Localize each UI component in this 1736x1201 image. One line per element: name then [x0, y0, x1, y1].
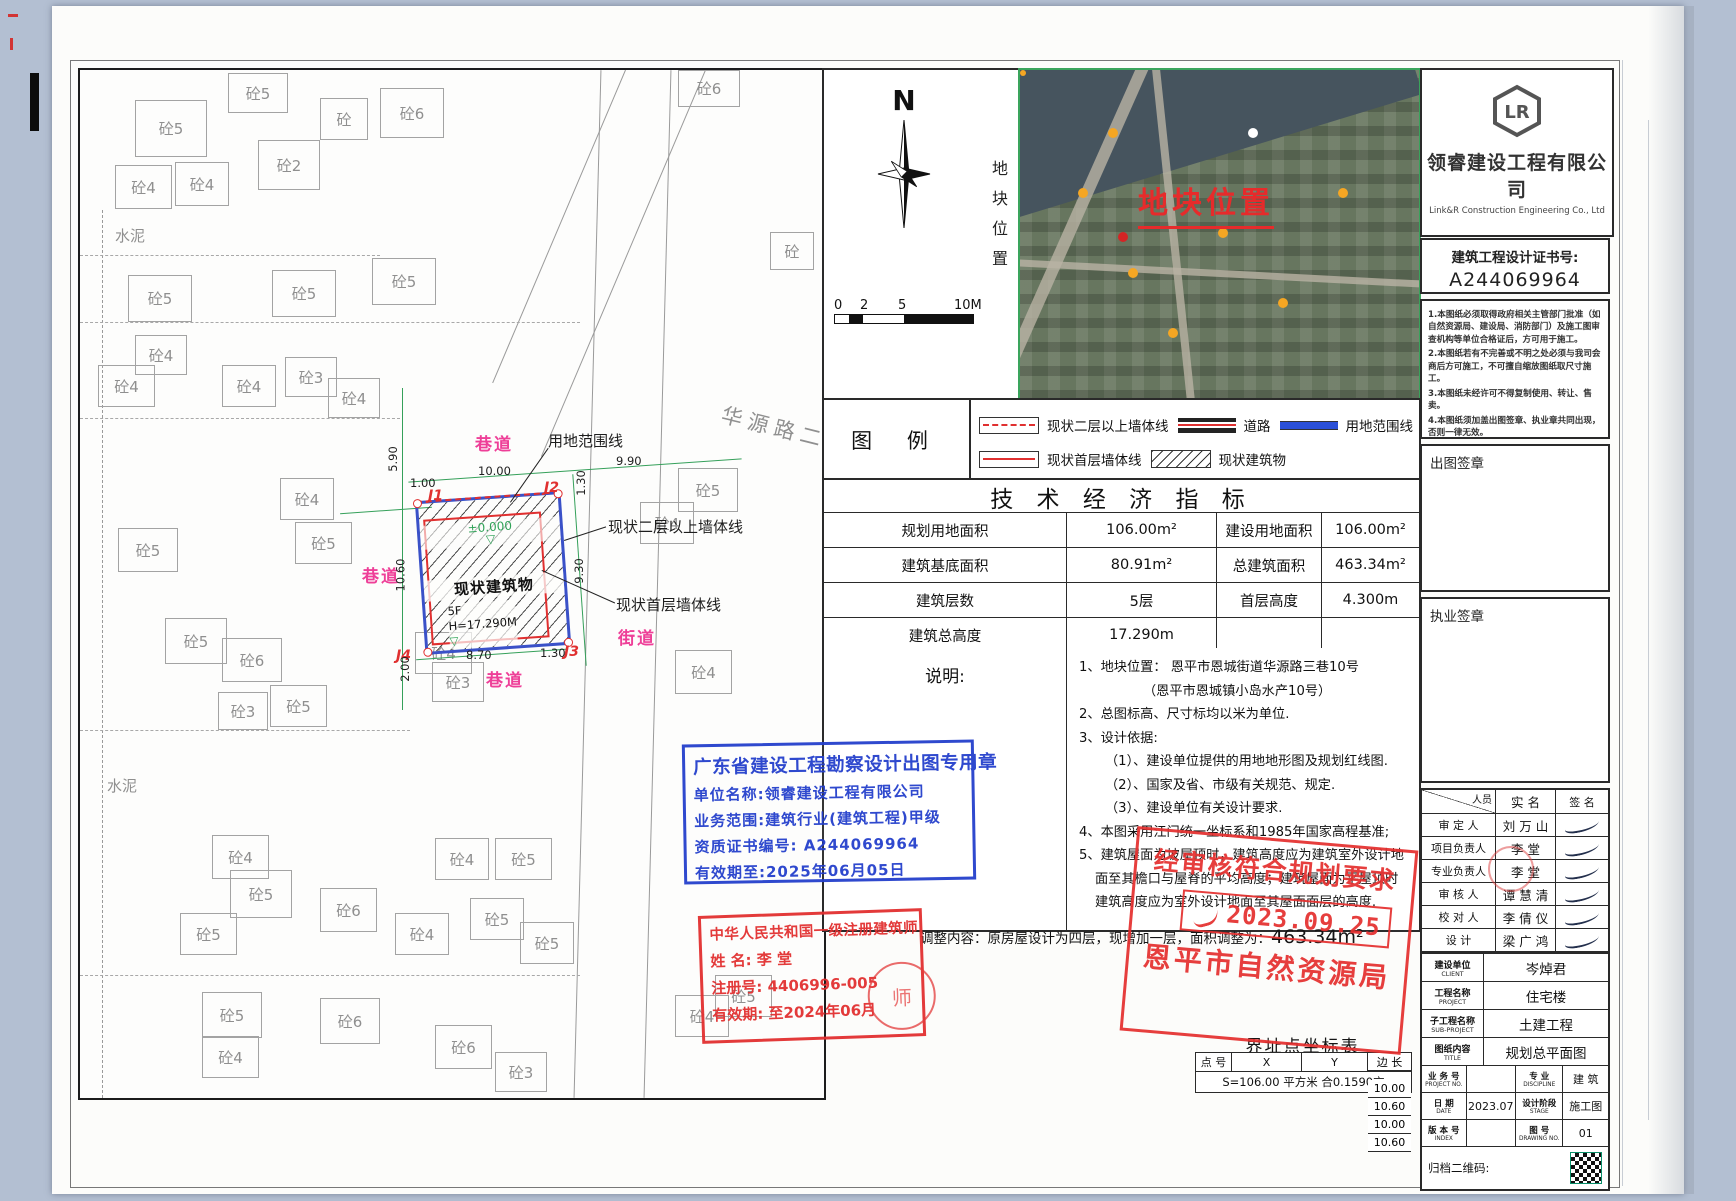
parcel-label: 砼 [336, 109, 351, 130]
company-block: LR 领睿建设工程有限公司 Link&R Construction Engine… [1420, 68, 1614, 237]
parcel: 砼3 [218, 692, 268, 730]
parcel: 砼5 [118, 528, 178, 572]
parcel: 砼5 [230, 870, 292, 918]
annotation-label: 现状二层以上墙体线 [608, 516, 743, 537]
legend-label: 现状二层以上墙体线 [1047, 415, 1169, 435]
company-note: 2.本图纸若有不完善或不明之处必须与我司会商后方可施工，不可擅自缩放图纸取尺寸施… [1428, 348, 1602, 385]
legend-label: 道路 [1244, 415, 1271, 435]
parcel-label: 砼3 [231, 701, 256, 722]
parcel: 砼2 [258, 140, 320, 190]
note-line: （1）、建设单位提供的用地地形图及规划红线图. [1079, 750, 1413, 769]
parcel: 砼5 [272, 270, 336, 317]
project-info-value: 住宅楼 [1484, 982, 1608, 1009]
tech-value: 4.300m [1322, 583, 1419, 617]
project-info-value: 土建工程 [1484, 1010, 1608, 1037]
tech-label: 建设用地面积 [1217, 513, 1322, 547]
parcel-label: 砼5 [485, 909, 510, 930]
parcel-label: 砼2 [277, 155, 302, 176]
qr-label: 归档二维码: [1428, 1160, 1489, 1176]
scale-bar: 0 2 5 10M [834, 298, 974, 324]
parcel-label: 砼5 [511, 849, 536, 870]
boundary-point-label: J3 [564, 644, 579, 660]
approval-date: 2023.09.25 [1225, 900, 1381, 941]
personnel-role: 校 对 人 [1422, 906, 1496, 928]
personnel-role: 审 定 人 [1422, 814, 1496, 836]
personnel-role: 项目负责人 [1422, 837, 1496, 859]
tech-value: 5层 [1067, 583, 1217, 617]
project-info-value: 岑焯君 [1484, 954, 1608, 981]
project-meta-row: 业 务 号PROJECT NO. 专 业DISCIPLINE 建 筑 [1422, 1065, 1608, 1092]
personal-seal [1488, 846, 1534, 892]
building-floors: 5FH=17.290M▽ [447, 600, 518, 649]
parcel: 砼6 [320, 888, 377, 932]
parcel: 砼4 [202, 1036, 259, 1078]
project-meta-value: 建 筑 [1563, 1066, 1608, 1092]
parcel-label: 砼6 [338, 1011, 363, 1032]
parcel-label: 砼4 [237, 376, 262, 397]
parcel-label: 砼4 [295, 489, 320, 510]
edge-length-value: 10.00 [1368, 1080, 1411, 1098]
tech-value: 80.91m² [1067, 548, 1217, 582]
architect-stamp: 中华人民共和国一级注册建筑师 姓 名: 李 堂 注册号: 4406996-005… [698, 908, 926, 1044]
scale-bar-segments [834, 314, 974, 324]
parcel-label: 砼5 [286, 696, 311, 717]
legend-label: 现状建筑物 [1219, 449, 1287, 469]
road-line [80, 730, 410, 731]
legend: 图 例 现状二层以上墙体线 道路 用地范围线 现状首层墙体线 现状建筑物 [822, 398, 1421, 482]
road-line [492, 70, 626, 383]
parcel-label: 砼5 [292, 283, 317, 304]
parcel: 砼5 [470, 898, 524, 940]
fold-line [1622, 60, 1623, 1186]
parcel: 砼3 [432, 662, 484, 702]
tech-label [1217, 618, 1322, 652]
legend-swatch-first-floor-wall [979, 451, 1039, 468]
scan-red-tick [10, 38, 13, 50]
parcel: 砼6 [320, 998, 380, 1044]
parcel-label: 砼6 [400, 103, 425, 124]
personnel-role: 设 计 [1422, 929, 1496, 951]
parcel-label: 砼6 [451, 1037, 476, 1058]
note-line: 1、地块位置： 恩平市恩城街道华源路三巷10号 [1079, 656, 1413, 675]
legend-swatch-upper-wall [979, 417, 1039, 434]
svg-text:N: N [892, 84, 915, 117]
road-line [80, 975, 580, 976]
boundary-point-label: J1 [428, 488, 443, 504]
parcel: 砼6 [435, 1025, 492, 1069]
project-info-row: 子工程名称SUB-PROJECT 土建工程 [1422, 1009, 1608, 1037]
north-arrow-icon: N [872, 84, 936, 234]
dimension-label: 10.00 [478, 464, 511, 478]
qr-code [1570, 1152, 1602, 1184]
company-name-en: Link&R Construction Engineering Co., Ltd [1422, 206, 1612, 216]
parcel-label: 砼3 [446, 672, 471, 693]
parcel: 砼5 [180, 913, 237, 955]
parcel: 砼 [320, 98, 368, 140]
project-info-row: 建设单位CLIENT 岑焯君 [1422, 954, 1608, 981]
dimension-label: 9.90 [616, 454, 642, 468]
parcel-label: 砼4 [410, 924, 435, 945]
legend-swatch-road [1178, 418, 1236, 433]
parcel-label: 砼5 [196, 924, 221, 945]
tech-table-row: 规划用地面积 106.00m² 建设用地面积 106.00m² [824, 512, 1419, 547]
parcel: 砼4 [115, 165, 172, 209]
parcel-label: 砼4 [691, 662, 716, 683]
parcel: 砼5 [128, 275, 192, 322]
map-pins [1020, 70, 1026, 76]
legend-label: 用地范围线 [1346, 415, 1414, 435]
dimension-label: 1.30 [574, 470, 588, 496]
project-info-value: 规划总平面图 [1484, 1038, 1608, 1065]
planning-approval-stamp: 经审核符合规划要求 2023.09.25 恩平市自然资源局 [1120, 826, 1419, 1055]
company-name-cn: 领睿建设工程有限公司 [1422, 148, 1612, 202]
parcel-label: 砼5 [696, 480, 721, 501]
legend-swatch-land-boundary [1280, 421, 1338, 430]
note-line: （恩平市恩城镇小岛水产10号） [1079, 680, 1413, 699]
tech-table-row: 建筑层数 5层 首层高度 4.300m [824, 582, 1419, 617]
parcel-label: 砼6 [336, 900, 361, 921]
plot-location-vertical-label: 地块位置 [986, 160, 1010, 280]
legend-title: 图 例 [824, 400, 971, 480]
personnel-signature [1556, 860, 1608, 882]
annotation-label: 用地范围线 [548, 430, 623, 451]
personnel-header: 人员 实 名 签 名 [1422, 790, 1608, 813]
road-line [80, 322, 580, 323]
archive-qr-row: 归档二维码: [1422, 1146, 1608, 1189]
parcel-label: 砼4 [450, 849, 475, 870]
tech-indicators-table: 规划用地面积 106.00m² 建设用地面积 106.00m² 建筑基底面积 8… [822, 512, 1421, 656]
parcel: 砼4 [328, 378, 380, 418]
parcel-label: 水泥 [115, 225, 145, 246]
personnel-signature [1556, 814, 1608, 836]
dimension-label: 1.30 [540, 646, 566, 660]
parcel: 砼5 [202, 992, 262, 1038]
personnel-role: 审 核 人 [1422, 883, 1496, 905]
company-notes: 1.本图纸必须取得政府相关主管部门批准（如自然资源局、建设局、消防部门）及施工图… [1420, 299, 1610, 439]
practice-seal-box: 执业签章 [1420, 597, 1610, 783]
parcel: 砼5 [135, 100, 207, 157]
coordinate-table: 点 号 X Y J1 2454393.434 463893.418 J2 245… [1195, 1052, 1412, 1093]
personnel-row: 校 对 人 李 倩 仪 [1422, 905, 1608, 928]
tech-label: 总建筑面积 [1217, 548, 1322, 582]
parcel: 砼4 [280, 478, 334, 520]
parcel-label: 砼5 [136, 540, 161, 561]
edge-length-header: 边 长 [1368, 1053, 1411, 1071]
parcel-label: 砼6 [240, 650, 265, 671]
parcel: 砼5 [228, 73, 288, 113]
personnel-signature [1556, 906, 1608, 928]
parcel: 砼6 [222, 638, 282, 682]
project-meta-value: 2023.07 [1467, 1093, 1516, 1119]
parcel-label: 砼3 [509, 1062, 534, 1083]
road-label: 巷道 [475, 430, 513, 455]
parcel: 砼4 [135, 335, 187, 375]
certificate-label: 建筑工程设计证书号: [1422, 246, 1608, 266]
note-line: （2）、国家及省、市级有关规范、规定. [1079, 774, 1413, 793]
parcel-label: 砼5 [535, 933, 560, 954]
signature-scribble [1564, 861, 1600, 881]
certificate-number: A244069964 [1422, 269, 1608, 291]
signature-scribble [1564, 907, 1600, 927]
road-line [80, 418, 400, 419]
personnel-signature [1556, 929, 1608, 951]
parcel-label: 砼5 [159, 118, 184, 139]
signature-scribble [1564, 884, 1600, 904]
parcel-label: 砼 [784, 241, 799, 262]
road-line [541, 70, 706, 457]
project-info-row: 工程名称PROJECT 住宅楼 [1422, 981, 1608, 1009]
dimension-label: 1.00 [410, 476, 436, 490]
parcel-label: 砼5 [246, 83, 271, 104]
project-info-row: 图纸内容TITLE 规划总平面图 [1422, 1037, 1608, 1065]
tech-label: 建筑层数 [824, 583, 1067, 617]
edge-length-value: 10.60 [1368, 1134, 1411, 1152]
project-info-block: 建设单位CLIENT 岑焯君 工程名称PROJECT 住宅楼 子工程名称SUB-… [1420, 952, 1610, 1191]
personnel-signature [1556, 837, 1608, 859]
project-meta-value: 01 [1563, 1120, 1608, 1146]
scan-artifact-bar [30, 73, 39, 131]
company-note: 4.本图纸须加盖出图签章、执业章共同出现，否则一律无效。 [1428, 415, 1602, 440]
parcel: 水泥 [100, 220, 160, 250]
company-note: 3.本图纸未经许可不得复制使用、转让、售卖。 [1428, 388, 1602, 413]
parcel: 砼5 [520, 922, 574, 964]
company-logo-icon: LR [1490, 84, 1544, 138]
dimension-label: 5.90 [386, 446, 400, 472]
tech-value [1322, 618, 1419, 652]
personnel-role: 专业负责人 [1422, 860, 1496, 882]
parcel-label: 砼4 [228, 847, 253, 868]
parcel-label: 砼5 [220, 1005, 245, 1026]
parcel: 砼6 [678, 70, 740, 107]
personnel-row: 审 定 人 刘 万 山 [1422, 813, 1608, 836]
parcel: 砼4 [395, 913, 449, 955]
parcel-label: 砼5 [249, 884, 274, 905]
parcel: 砼5 [270, 685, 327, 727]
note-line: （3）、建设单位有关设计要求. [1079, 797, 1413, 816]
legend-label: 现状首层墙体线 [1047, 449, 1142, 469]
design-institute-stamp: 广东省建设工程勘察设计出图专用章 单位名称:领睿建设工程有限公司 业务范围:建筑… [682, 739, 976, 884]
parcel: 砼4 [435, 838, 489, 880]
edge-length-value: 10.60 [1368, 1098, 1411, 1116]
project-meta-value [1467, 1120, 1516, 1146]
personnel-name: 刘 万 山 [1496, 814, 1556, 836]
tech-value: 463.34m² [1322, 548, 1419, 582]
legend-swatch-existing-building [1151, 450, 1211, 468]
road-line [574, 70, 602, 1098]
plot-seal-box: 出图签章 [1420, 444, 1610, 592]
scan-fold-shading [1648, 6, 1694, 1194]
parcel: 砼6 [380, 88, 444, 138]
dimension-label: 10.60 [393, 559, 407, 592]
personnel-name: 梁 广 鸿 [1496, 929, 1556, 951]
road-label: 巷道 [486, 666, 524, 691]
scan-red-tick [8, 14, 18, 17]
dimension-label: 2.00 [398, 656, 412, 682]
signature-scribble [1564, 838, 1600, 858]
certificate-block: 建筑工程设计证书号: A244069964 [1420, 238, 1610, 294]
boundary-point-label: J2 [544, 480, 559, 496]
parcel: 砼5 [165, 618, 227, 664]
parcel-label: 砼4 [131, 177, 156, 198]
seal-scribble [1188, 894, 1220, 929]
parcel: 砼5 [295, 522, 352, 564]
parcel: 砼3 [495, 1052, 547, 1092]
parcel: 砼4 [222, 365, 276, 407]
road-label: 街道 [618, 624, 656, 649]
boundary-point-J1 [413, 499, 423, 509]
scanned-drawing-page: 砼5砼4砼4砼2砼砼6砼5砼6水泥砼5砼5砼5砼砼4砼4砼4砼3砼4砼5砼4砼4… [0, 0, 1736, 1201]
parcel-label: 砼4 [342, 388, 367, 409]
street-name-label: 华源路二巷 [718, 399, 826, 461]
parcel: 水泥 [92, 770, 152, 800]
plot-location-dot [1118, 232, 1128, 242]
fold-line [1648, 120, 1649, 1120]
project-meta-value: 施工图 [1563, 1093, 1608, 1119]
parcel-label: 砼4 [149, 345, 174, 366]
personnel-signature [1556, 883, 1608, 905]
parcel-label: 砼4 [114, 376, 139, 397]
leader-line [564, 526, 606, 541]
parcel-label: 砼5 [311, 533, 336, 554]
signature-scribble [1564, 930, 1600, 950]
company-note: 1.本图纸必须取得政府相关主管部门批准（如自然资源局、建设局、消防部门）及施工图… [1428, 309, 1602, 346]
tech-value: 106.00m² [1067, 513, 1217, 547]
parcel: 砼5 [372, 258, 436, 305]
svg-text:LR: LR [1504, 102, 1529, 123]
tech-label: 规划用地面积 [824, 513, 1067, 547]
personnel-row: 设 计 梁 广 鸿 [1422, 928, 1608, 951]
practice-seal-label: 执业签章 [1430, 609, 1484, 625]
plot-seal-label: 出图签章 [1430, 456, 1484, 472]
tech-table-row: 建筑基底面积 80.91m² 总建筑面积 463.34m² [824, 547, 1419, 582]
approval-date-box: 2023.09.25 [1180, 889, 1393, 948]
parcel: 砼4 [175, 162, 229, 206]
parcel: 砼4 [675, 650, 732, 694]
personnel-name: 李 倩 仪 [1496, 906, 1556, 928]
dimension-label: 9.30 [572, 558, 586, 584]
plot-location-map-label: 地块位置 [1138, 178, 1274, 229]
parcel: 砼5 [495, 838, 552, 880]
tech-indicators-title: 技 术 经 济 指 标 [822, 478, 1421, 514]
parcel-label: 砼5 [148, 288, 173, 309]
edge-length-value: 10.00 [1368, 1116, 1411, 1134]
tech-label: 建筑总高度 [824, 618, 1067, 652]
signature-scribble [1564, 815, 1600, 835]
annotation-label: 现状首层墙体线 [616, 594, 721, 615]
tech-label: 建筑基底面积 [824, 548, 1067, 582]
tech-value: 17.290m [1067, 618, 1217, 652]
parcel: 砼 [770, 232, 814, 270]
dimension-label: 8.70 [466, 648, 492, 662]
parcel-label: 砼4 [190, 174, 215, 195]
road-line [80, 255, 380, 256]
road-line [102, 210, 103, 1098]
project-meta-row: 日 期DATE 2023.07 设计阶段STAGE 施工图 [1422, 1092, 1608, 1119]
parcel-label: 砼3 [299, 367, 324, 388]
north-panel: N 地块位置 0 2 5 10M [822, 68, 1022, 402]
tech-value: 106.00m² [1322, 513, 1419, 547]
parcel-label: 砼4 [218, 1047, 243, 1068]
parcel-label: 砼6 [697, 78, 722, 99]
satellite-map: 地块位置 [1018, 68, 1421, 402]
project-meta-value [1467, 1066, 1516, 1092]
note-line: 3、设计依据: [1079, 727, 1413, 746]
parcel-label: 砼5 [184, 631, 209, 652]
road-line [644, 70, 672, 1098]
note-line: 2、总图标高、尺寸标均以米为单位. [1079, 703, 1413, 722]
parcel-label: 砼5 [392, 271, 417, 292]
tech-label: 首层高度 [1217, 583, 1322, 617]
project-meta-row: 版 本 号INDEX 图 号DRAWING NO. 01 [1422, 1119, 1608, 1146]
parcel-label: 水泥 [107, 775, 137, 796]
